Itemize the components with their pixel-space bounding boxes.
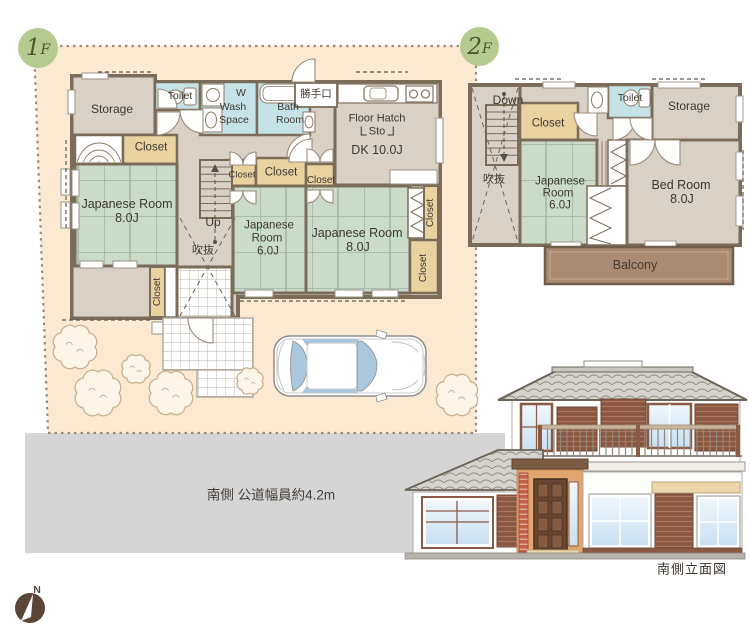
label-void-2f: 吹抜 — [483, 175, 505, 186]
label-jr8l-1: Japanese Room — [81, 198, 172, 211]
genkan-tiles — [177, 267, 232, 318]
car-illustration — [274, 330, 426, 402]
label-jr6-2f-3: 6.0J — [549, 200, 571, 212]
label-toilet-1f: Toilet — [168, 91, 193, 102]
label-jr8l-2: 8.0J — [115, 212, 139, 225]
label-jr6-2f-1: Japanese — [535, 176, 585, 188]
label-closet-right-2: Closet — [419, 254, 429, 282]
label-toilet-2f: Toilet — [618, 93, 643, 104]
label-closet-right-1: Closet — [426, 199, 436, 227]
compass-icon — [15, 593, 45, 623]
label-closet-c: Closet — [307, 176, 335, 186]
label-dk: DK 10.0J — [351, 144, 402, 157]
label-jr6-3: 6.0J — [257, 246, 279, 258]
label-jr6-2: Room — [252, 233, 283, 245]
label-wash-3: Space — [219, 115, 249, 126]
elevation-caption: 南側立面図 — [657, 563, 727, 576]
label-closet-a: Closet — [229, 170, 256, 180]
bracket-right-icon — [387, 127, 393, 136]
label-up: Up — [205, 216, 220, 228]
label-void-1f: 吹抜 — [192, 246, 214, 257]
label-balcony: Balcony — [613, 259, 657, 272]
label-closet-b: Closet — [265, 167, 298, 179]
floor-1f-badge: 1F — [18, 28, 58, 68]
label-closet-topleft: Closet — [135, 142, 168, 154]
label-floor-hatch-2: Sto — [361, 127, 394, 138]
label-jr8r-1: Japanese Room — [311, 227, 402, 240]
label-bath-2: Room — [276, 115, 304, 126]
tokonoma — [75, 135, 123, 164]
label-bedroom-1: Bed Room — [651, 179, 710, 192]
label-jr8r-2: 8.0J — [346, 241, 370, 254]
floorplan-page: 1F 2F Storage Toilet W Wash Space Bath R… — [0, 0, 750, 638]
bracket-left-icon — [361, 127, 367, 136]
label-back-door: 勝手口 — [300, 89, 332, 100]
label-wash-1: W — [236, 88, 246, 99]
label-closet-2f: Closet — [532, 118, 565, 130]
kitchen-counter — [338, 84, 437, 103]
label-storage-2f: Storage — [668, 100, 710, 112]
label-storage-1f: Storage — [91, 103, 133, 115]
floor-2f-badge: 2F — [460, 27, 499, 66]
compass-north-label: N — [33, 585, 41, 596]
label-jr6-1: Japanese — [244, 220, 294, 232]
road-width-label: 南側 公道幅員約4.2m — [207, 488, 335, 502]
label-down: Down — [493, 94, 524, 106]
label-bath-1: Bath — [277, 102, 299, 113]
label-jr6-2f-2: Room — [543, 188, 574, 200]
label-wash-2: Wash — [220, 102, 246, 113]
label-bedroom-2: 8.0J — [670, 193, 694, 206]
label-closet-engawa: Closet — [153, 278, 163, 306]
label-floor-hatch-1: Floor Hatch — [349, 114, 406, 125]
